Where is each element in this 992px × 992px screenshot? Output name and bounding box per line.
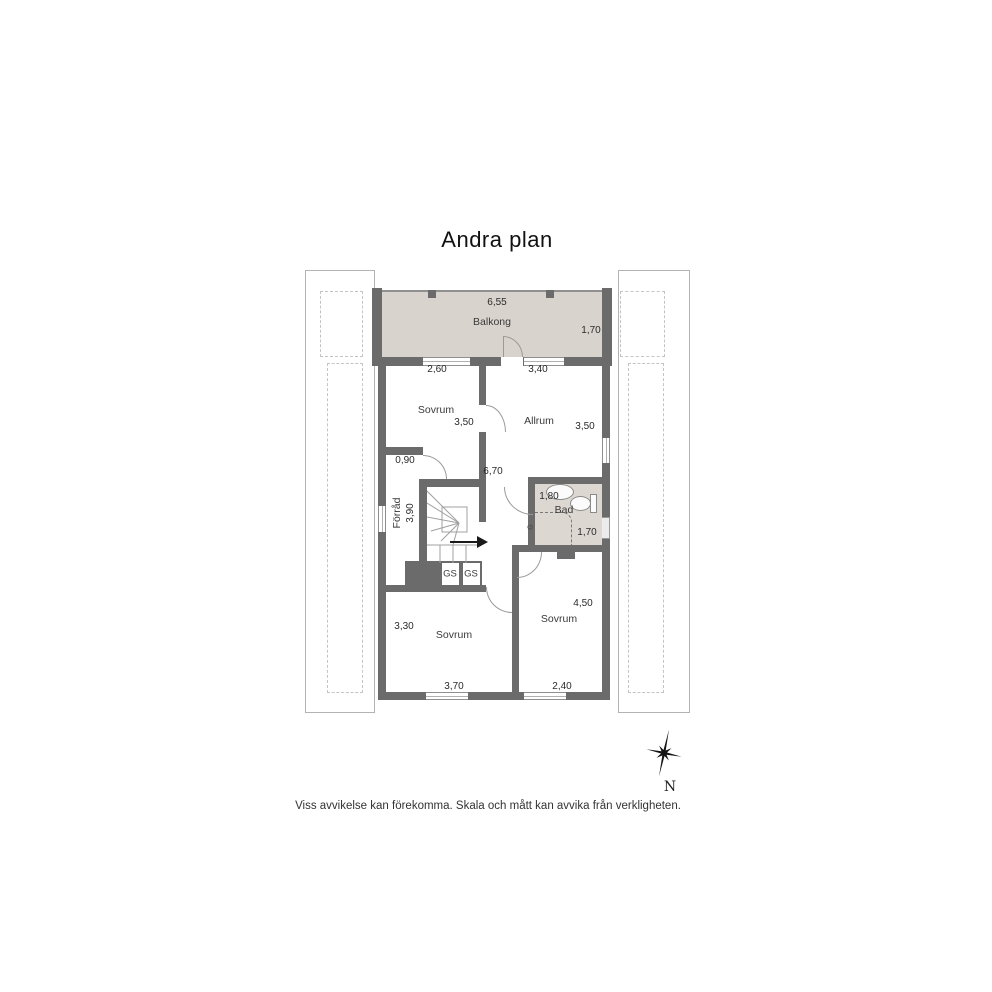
wall-stairs-right bbox=[479, 487, 486, 522]
room-label-livingroom: Allrum bbox=[524, 416, 554, 427]
left-wing-dashed-body bbox=[327, 363, 363, 693]
dim-storage-length: 3,90 bbox=[406, 503, 416, 522]
room-label-bathroom: Bad bbox=[555, 505, 574, 516]
wall-stairs-left bbox=[419, 487, 427, 561]
wall-mass-below-stairs bbox=[405, 561, 440, 587]
balcony-wall-left bbox=[372, 288, 382, 360]
dim-window-bottom-right: 2,40 bbox=[552, 682, 571, 692]
dim-bedroom-right-depth: 4,50 bbox=[573, 599, 592, 609]
door-arc-bedroom-left bbox=[486, 587, 512, 613]
balcony-post-right bbox=[546, 290, 554, 298]
room-label-bedroom-top: Sovrum bbox=[418, 405, 454, 416]
staircase bbox=[427, 487, 479, 563]
wall-bedroom-livingroom-upper bbox=[479, 366, 486, 405]
window-right-bathroom bbox=[601, 517, 610, 539]
wall-top-exterior bbox=[372, 357, 612, 366]
wall-bottom-exterior bbox=[378, 692, 610, 700]
disclaimer-text: Viss avvikelse kan förekomma. Skala och … bbox=[295, 800, 681, 812]
dim-bedroom-top-depth: 3,50 bbox=[454, 418, 473, 428]
shower-partition bbox=[535, 512, 572, 545]
door-arc-bathroom bbox=[504, 487, 533, 515]
door-arc-storage bbox=[423, 455, 447, 479]
right-wing-dashed-body bbox=[628, 363, 664, 693]
dim-bathroom-depth: 1,70 bbox=[577, 528, 596, 538]
wall-left-exterior bbox=[378, 366, 386, 700]
left-wing-dashed-top bbox=[320, 291, 363, 357]
door-arc-bedroom-right bbox=[517, 552, 542, 578]
balcony-wall-right bbox=[602, 288, 612, 360]
balcony-door-opening bbox=[501, 357, 523, 366]
window-bottom-right bbox=[524, 692, 566, 700]
right-wing-dashed-top bbox=[620, 291, 665, 357]
room-label-bedroom-right: Sovrum bbox=[541, 614, 577, 625]
stair-direction-arrow-icon bbox=[477, 536, 488, 548]
dim-opening: 0,90 bbox=[395, 456, 414, 466]
dim-livingroom-depth: 3,50 bbox=[575, 422, 594, 432]
dim-window-top-left: 2,60 bbox=[427, 365, 446, 375]
dim-balcony-width: 6,55 bbox=[487, 298, 506, 308]
dim-window-bottom-left: 3,70 bbox=[444, 682, 463, 692]
dim-hall-length: 6,70 bbox=[483, 467, 502, 477]
dim-bedroom-left-width: 3,30 bbox=[394, 622, 413, 632]
window-left-storage bbox=[378, 506, 386, 532]
wall-bathroom-bottom bbox=[519, 545, 602, 552]
room-label-bedroom-left: Sovrum bbox=[436, 630, 472, 641]
room-label-storage: Förråd bbox=[392, 498, 403, 529]
label-closet-gs-left: GS bbox=[443, 569, 457, 579]
wall-bedroom-left-top bbox=[386, 585, 486, 592]
balcony-railing bbox=[381, 290, 602, 292]
wall-storage-top bbox=[386, 447, 423, 455]
dim-balcony-depth: 1,70 bbox=[581, 326, 600, 336]
window-bottom-left bbox=[426, 692, 468, 700]
room-label-balcony: Balkong bbox=[473, 317, 511, 328]
label-closet-gs-right: GS bbox=[464, 569, 478, 579]
stair-direction-line bbox=[450, 541, 478, 543]
balcony-post-left bbox=[428, 290, 436, 298]
toilet-tank-icon bbox=[590, 494, 597, 513]
dim-window-top-right: 3,40 bbox=[528, 365, 547, 375]
wall-stairs-top bbox=[419, 479, 486, 487]
window-right-livingroom bbox=[602, 438, 610, 463]
compass-rose-icon: N bbox=[633, 722, 697, 798]
wall-bathroom-top bbox=[528, 477, 602, 484]
wall-bathroom-nib bbox=[557, 552, 575, 559]
label-bathroom-cabinet: G bbox=[528, 524, 535, 529]
page-title: Andra plan bbox=[441, 227, 552, 253]
dim-bathroom-width: 1,80 bbox=[539, 492, 558, 502]
door-arc-bedroom-top bbox=[486, 405, 506, 432]
floor-plan-page: Andra plan bbox=[0, 0, 992, 992]
compass-north-label: N bbox=[664, 779, 676, 795]
